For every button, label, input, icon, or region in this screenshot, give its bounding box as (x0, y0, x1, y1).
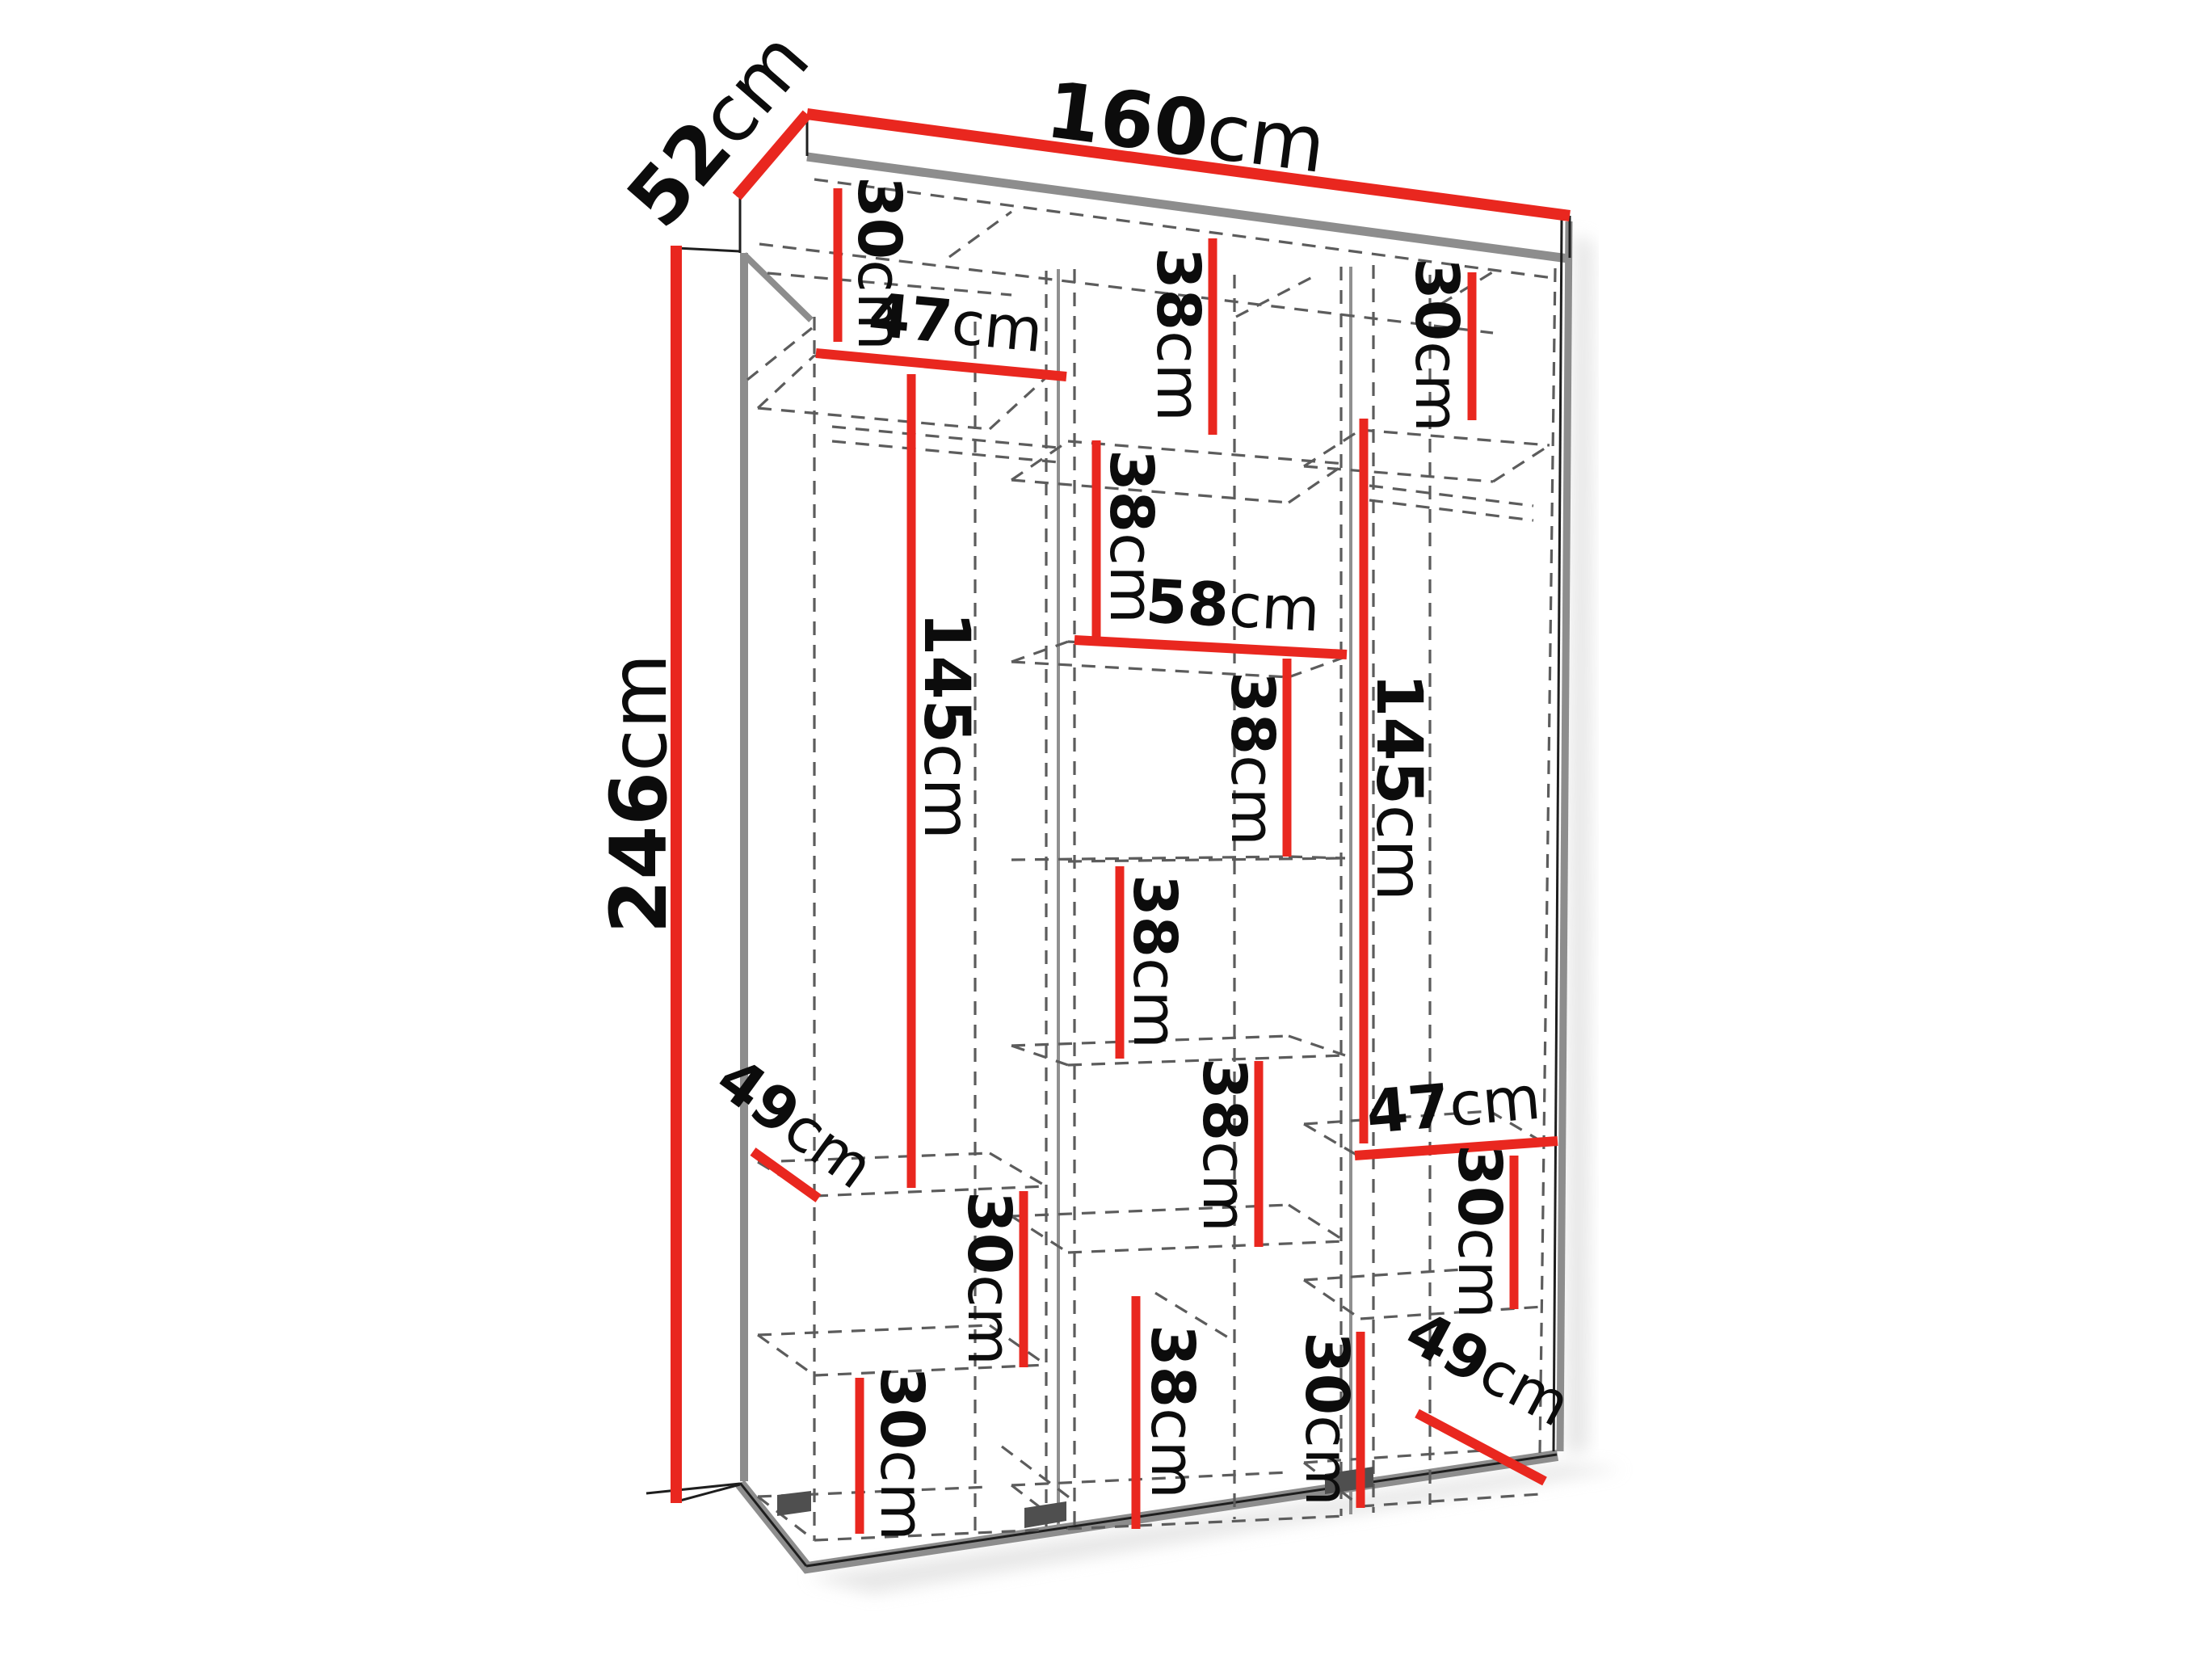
dimension-label-width-top: 160cm (1041, 65, 1331, 191)
dimension-label-mid-shelf-3-height: 38cm (1217, 672, 1287, 846)
dimension-label-mid-shelf-5-height: 38cm (1189, 1058, 1259, 1232)
dimension-label-right-hanging-height: 145cm (1362, 673, 1435, 901)
dimension-label-height-left: 246cm (594, 654, 684, 934)
diagram-stage: 52cm160cm246cm30cm47cm145cm38cm30cm38cm5… (0, 0, 2212, 1659)
dimension-label-left-hanging-height: 145cm (910, 612, 982, 840)
dimension-label-left-section-width: 47cm (865, 280, 1045, 366)
wardrobe-dimension-diagram: 52cm160cm246cm30cm47cm145cm38cm30cm38cm5… (0, 0, 2212, 1659)
dimension-label-left-lower-shelf-height: 30cm (954, 1191, 1024, 1366)
dimension-label-mid-bottom-right-height: 30cm (1292, 1332, 1361, 1506)
dimension-label-right-top-shelf-height: 30cm (1402, 258, 1471, 432)
dimension-label-mid-section-width: 58cm (1144, 566, 1322, 645)
dimension-label-mid-shelf-4-height: 38cm (1120, 874, 1189, 1049)
dimension-label-mid-shelf-1-height: 38cm (1143, 247, 1213, 422)
dimension-label-left-bottom-shelf-height: 30cm (867, 1366, 936, 1541)
dimension-label-right-section-width: 47cm (1364, 1063, 1543, 1147)
dimension-label-right-lower-shelf-height: 30cm (1445, 1144, 1514, 1319)
dimension-label-mid-bottom-shelf-height: 38cm (1138, 1324, 1207, 1499)
